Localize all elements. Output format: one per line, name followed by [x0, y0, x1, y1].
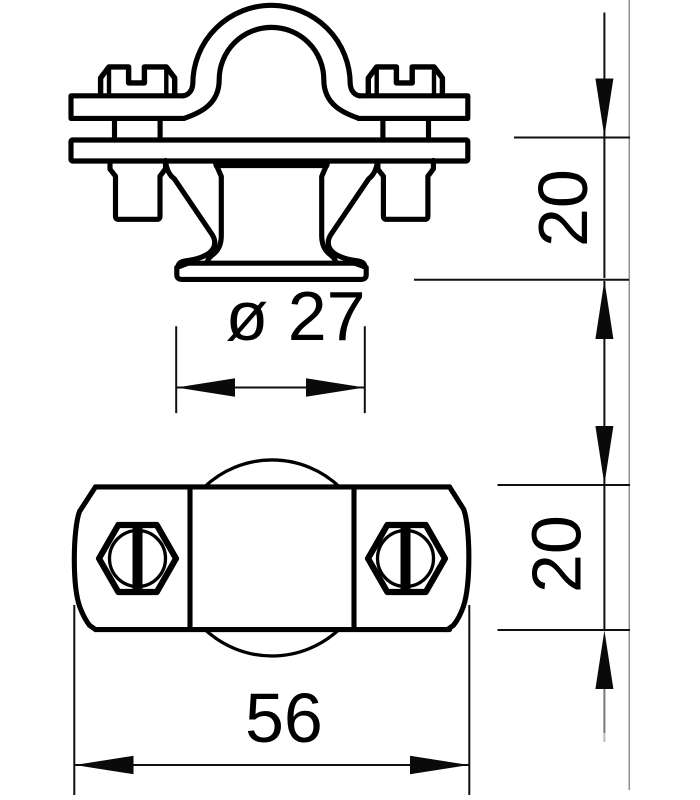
svg-text:20: 20 — [524, 169, 602, 247]
svg-text:20: 20 — [518, 515, 596, 593]
svg-text:ø 27: ø 27 — [226, 277, 366, 355]
svg-text:56: 56 — [245, 679, 323, 757]
